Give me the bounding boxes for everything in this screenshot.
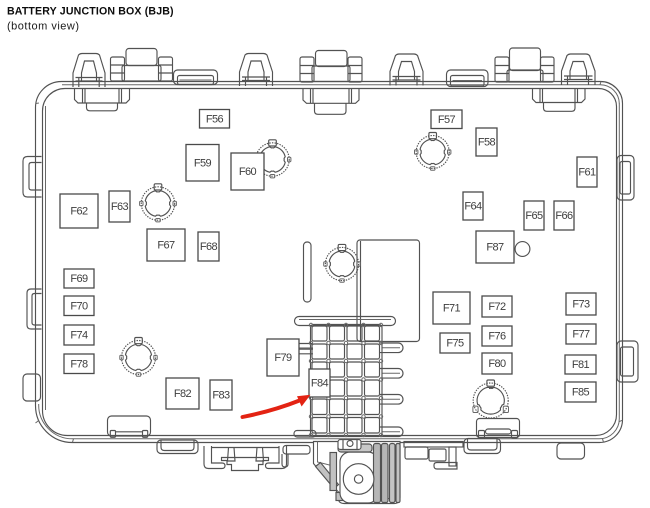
svg-text:F82: F82 <box>174 388 192 400</box>
svg-text:F84: F84 <box>311 378 329 390</box>
svg-text:F72: F72 <box>488 301 506 313</box>
svg-text:F65: F65 <box>525 210 543 222</box>
svg-text:F64: F64 <box>464 201 482 213</box>
svg-text:F59: F59 <box>194 157 212 169</box>
svg-text:F77: F77 <box>572 329 590 341</box>
svg-text:F60: F60 <box>239 166 257 178</box>
svg-text:F62: F62 <box>70 206 88 218</box>
svg-text:F70: F70 <box>70 300 88 312</box>
svg-text:F81: F81 <box>572 359 590 371</box>
svg-text:F80: F80 <box>488 358 506 370</box>
svg-text:(bottom view): (bottom view) <box>7 21 80 33</box>
svg-text:F61: F61 <box>578 167 596 179</box>
svg-text:F69: F69 <box>70 273 88 285</box>
svg-text:F56: F56 <box>206 114 224 126</box>
svg-text:F78: F78 <box>70 358 88 370</box>
svg-text:F74: F74 <box>70 330 88 342</box>
svg-text:F85: F85 <box>572 387 590 399</box>
svg-text:F71: F71 <box>443 303 461 315</box>
svg-text:F83: F83 <box>212 390 230 402</box>
svg-text:F67: F67 <box>157 240 175 252</box>
svg-text:F73: F73 <box>572 299 590 311</box>
svg-text:F57: F57 <box>438 114 456 126</box>
svg-text:F68: F68 <box>200 241 218 253</box>
svg-text:F66: F66 <box>555 210 573 222</box>
svg-text:F87: F87 <box>486 242 504 254</box>
svg-text:F63: F63 <box>111 201 129 213</box>
svg-text:F58: F58 <box>478 137 496 149</box>
svg-text:F76: F76 <box>488 331 506 343</box>
svg-text:BATTERY JUNCTION BOX (BJB): BATTERY JUNCTION BOX (BJB) <box>7 6 174 18</box>
svg-text:F75: F75 <box>446 338 464 350</box>
svg-text:F79: F79 <box>274 352 292 364</box>
